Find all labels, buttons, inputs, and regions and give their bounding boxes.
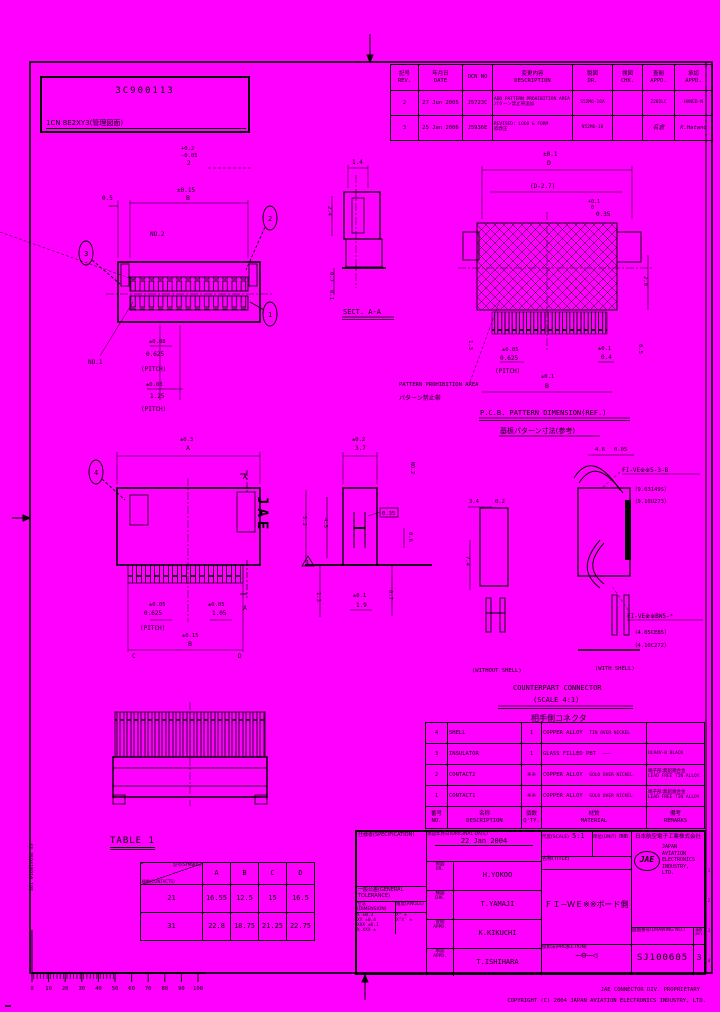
company-box: 日本航空電子工業株式会社 JAE JAPAN AVIATION ELECTRON… bbox=[632, 832, 704, 927]
top-sect-a1: A bbox=[243, 473, 247, 481]
table1-col-d: D bbox=[287, 863, 315, 885]
parts-row-contact2: 2 CONTACT2 ※※ COPPER ALLOY GOLD OVER NIC… bbox=[426, 765, 705, 786]
table1-value: 22.8 bbox=[203, 913, 231, 941]
stamp-note: 1CN 8E2XY3(管理図面) bbox=[46, 118, 246, 129]
cp-dim-46: 4.6 bbox=[595, 447, 605, 453]
part-qty: 1 bbox=[522, 723, 542, 744]
part-material: COPPER ALLOY bbox=[543, 793, 583, 799]
drawing-no-label: 図面番号(DRAWING NO.) bbox=[632, 928, 685, 933]
cp-caption-left: (WITHOUT SHELL) bbox=[472, 668, 522, 674]
part-name: INSULATOR bbox=[448, 744, 522, 765]
pcb-tol-d: ±0.1 bbox=[543, 151, 558, 158]
rev-date: 27 Jun 2005 bbox=[419, 91, 463, 116]
revision-row-3: 3 25 Jan 2006 J5936E REVISED: LOGO & FOR… bbox=[391, 116, 713, 141]
cp-label-bot: FI-VE※※BW5-* bbox=[627, 613, 674, 620]
top-sect-a2: A bbox=[243, 604, 247, 612]
front-dim-0_5: 0.5 bbox=[102, 195, 113, 202]
ruler-tick-20: 20 bbox=[62, 986, 69, 992]
front-pitch1-tol: ±0.08 bbox=[149, 339, 166, 345]
rev-number: 3 bbox=[391, 116, 419, 141]
scale-label: 尺度(SCALE) bbox=[542, 835, 569, 840]
front-balloon-3: 3 bbox=[84, 250, 88, 258]
top-q-tol: ±0.05 bbox=[208, 602, 225, 608]
front-view: 3 2 1 0.5 +0.2 -0.05 2 ±0.15 B NO.2 NO.1… bbox=[0, 146, 277, 413]
table1-value: 12.5 bbox=[231, 885, 259, 913]
footer-proprietary: JAE CONNECTOR DIV. PROPRIETARY bbox=[601, 987, 701, 993]
pcb-title-jp: 基板パターン寸法(参考) bbox=[500, 426, 575, 435]
company-name-jp: 日本航空電子工業株式会社 bbox=[632, 832, 704, 840]
pcb-dim-d: D bbox=[547, 159, 551, 167]
rev-chk-sig bbox=[613, 116, 643, 141]
scale-box: 尺度(SCALE) 5:1 単位(UNIT) mm bbox=[542, 832, 632, 857]
cp-dim-02: 0.2 bbox=[495, 499, 505, 505]
sheet-rev-value: 3 bbox=[694, 945, 704, 973]
rev-dcn: J5936E bbox=[463, 116, 493, 141]
cp-label-top-s2: 〔9.10U273〕 bbox=[632, 498, 670, 505]
company-name-en-3: INDUSTRY, LTD. bbox=[662, 864, 704, 877]
front-label-no2: NO.2 bbox=[150, 231, 165, 238]
title-value-box: ＦＩ−ＷＥ※※ボード側 bbox=[542, 870, 632, 945]
drawing-number: SJ100605 bbox=[632, 945, 694, 973]
rev-desc-jp: パターン禁止帯追加 bbox=[494, 103, 571, 108]
projection-label: 投影法(PROJECTION) bbox=[542, 945, 587, 950]
edge-strip-mark-2: 2 bbox=[708, 898, 711, 903]
scale-value: 5:1 bbox=[572, 832, 585, 840]
top-pitch: 0.625 bbox=[144, 610, 162, 617]
rev-desc-jp: 枠改正 bbox=[494, 128, 571, 133]
approval-stamp: 3C900113 1CN 8E2XY3(管理図面) bbox=[40, 76, 250, 133]
table1-row-21: 21 16.55 12.5 15 16.5 bbox=[141, 885, 315, 913]
table1: 記号(SYMBOL) 極数(CONTACTS) A B C D 21 16.55… bbox=[140, 862, 315, 941]
mid-tol-19: ±0.1 bbox=[353, 593, 366, 599]
rev-dcn: J5723C bbox=[463, 91, 493, 116]
part-finish: ——— bbox=[603, 752, 611, 757]
ruler-tick-100: 100 bbox=[193, 986, 203, 992]
parts-row-insulator: 3 INSULATOR 1 GLASS FILLED PBT ——— UL94V… bbox=[426, 744, 705, 765]
top-pitch-lbl: (PITCH) bbox=[140, 625, 165, 632]
tol-dim-row: X.XXX ± bbox=[357, 928, 396, 933]
cp-label-bot-s2: 〔4.10C272〕 bbox=[632, 642, 670, 649]
pcb-dim-0_5: 0.5 bbox=[637, 344, 643, 354]
part-no: 1 bbox=[426, 786, 448, 807]
cp-caption-right: (WITH SHELL) bbox=[595, 666, 635, 672]
pcb-title-en: P.C.B. PATTERN DIMENSION(REF.) bbox=[480, 409, 606, 417]
counterpart-view: 3.4 0.2 7.4 4.6 0.05 FI-VE※※5-3-B 〔9.031… bbox=[464, 447, 703, 723]
sign-name: T.ISHIHARA bbox=[454, 949, 541, 976]
front-tol-b: ±0.15 bbox=[177, 187, 195, 194]
cp-label-top-s1: 〔9.03149S〕 bbox=[632, 486, 670, 493]
front-dim-b: B bbox=[186, 194, 190, 202]
front-balloon-2: 2 bbox=[268, 215, 272, 223]
top-q: 1.05 bbox=[212, 610, 227, 617]
top-tol-b: ±0.15 bbox=[182, 633, 199, 639]
ruler-tick-30: 30 bbox=[78, 986, 85, 992]
unit-label: 単位(UNIT) bbox=[593, 835, 616, 840]
pcb-tol-04: ±0.1 bbox=[598, 346, 611, 352]
front-pitch2-tol: ±0.08 bbox=[146, 382, 163, 388]
sign-row-appd: 査閲APPD. K.KIKUCHI bbox=[427, 920, 541, 949]
pcb-pad-tol-m: 0 bbox=[591, 205, 594, 211]
top-dim-a: A bbox=[186, 444, 190, 452]
front-tol-minus: -0.05 bbox=[181, 153, 198, 159]
stamp-number: 3C900113 bbox=[42, 86, 248, 96]
pcb-pattern-view: ±0.1 D (D-2.7) +0.1 0 0.35 2.0 1.3 0.5 ±… bbox=[399, 151, 652, 436]
parts-row-shell: 4 SHELL 1 COPPER ALLOY TIN OVER NICKEL bbox=[426, 723, 705, 744]
parts-list: 4 SHELL 1 COPPER ALLOY TIN OVER NICKEL 3… bbox=[425, 722, 705, 829]
sign-row-appl: 承認APPD. T.ISHIHARA bbox=[427, 949, 541, 976]
table1-value: 22.75 bbox=[287, 913, 315, 941]
rev-appl-sig: HANED-N bbox=[675, 91, 713, 116]
front-dim-2: 2 bbox=[187, 160, 191, 167]
front-pitch1: 0.625 bbox=[146, 351, 164, 358]
mid-dim-52: 5.2 bbox=[301, 516, 307, 526]
table1-contacts: 31 bbox=[141, 913, 203, 941]
unit-value: mm bbox=[619, 832, 627, 840]
part-material: COPPER ALLOY bbox=[543, 730, 583, 736]
table1-value: 15 bbox=[259, 885, 287, 913]
jae-logo: JAE bbox=[634, 851, 660, 871]
edge-strip-mark-3: 3 bbox=[708, 928, 711, 933]
center-marks bbox=[5, 34, 373, 1006]
front-pitch2: 1.25 bbox=[150, 393, 165, 400]
rev-label-box: 版数 (REV.) bbox=[694, 927, 704, 945]
pcb-dim-1_3: 1.3 bbox=[467, 340, 473, 350]
table1-value: 18.75 bbox=[231, 913, 259, 941]
ruler-tick-90: 90 bbox=[178, 986, 185, 992]
ruler-tick-50: 50 bbox=[112, 986, 119, 992]
front-tol-plus: +0.2 bbox=[181, 146, 194, 152]
part-no: 4 bbox=[426, 723, 448, 744]
mid-dim-06: 0.6 bbox=[407, 532, 413, 542]
table1-col-c: C bbox=[259, 863, 287, 885]
cp-dim-74: 7.4 bbox=[464, 556, 470, 567]
rev-dr-sig: S52M6-10A bbox=[573, 91, 613, 116]
rev-chk-sig bbox=[613, 91, 643, 116]
table1-title: TABLE 1 bbox=[110, 836, 155, 850]
table1-value: 16.5 bbox=[287, 885, 315, 913]
company-name-en-1: JAPAN AVIATION bbox=[662, 844, 704, 857]
part-finish: GOLD OVER NICKEL bbox=[589, 794, 632, 799]
drawing-no-label-box: 図面番号(DRAWING NO.) bbox=[632, 927, 694, 945]
mid-dim-07: 0.7 bbox=[387, 590, 393, 600]
sect-dim-1_4: 1.4 bbox=[352, 159, 363, 166]
revision-row-2: 2 27 Jun 2005 J5723C ADD PATTERN PROHIBI… bbox=[391, 91, 713, 116]
top-dim-c: C bbox=[132, 653, 136, 660]
cp-dim-34: 3.4 bbox=[469, 499, 480, 505]
part-name: CONTACT1 bbox=[448, 786, 522, 807]
cp-dim-005: 0.05 bbox=[614, 447, 627, 453]
revision-table: 記号REV. 年月日DATE DCN NO 変更内容DESCRIPTION 製図… bbox=[390, 64, 713, 141]
part-finish: TIN OVER NICKEL bbox=[589, 731, 630, 736]
section-aa-label: SECT. A-A bbox=[343, 308, 382, 316]
part-name: SHELL bbox=[448, 723, 522, 744]
pcb-pitch-lbl: (PITCH) bbox=[495, 368, 520, 375]
sect-dim-0_1: 0.1 bbox=[328, 290, 334, 300]
projection-box: 投影法(PROJECTION) —⊖—◁ bbox=[542, 945, 632, 973]
sect-dim-2_4: 2.4 bbox=[326, 206, 332, 217]
rev-appd-sig: 2202LC bbox=[643, 91, 675, 116]
part-material: COPPER ALLOY bbox=[543, 772, 583, 778]
sign-name: H.YOKOO bbox=[454, 862, 541, 890]
part-name: CONTACT2 bbox=[448, 765, 522, 786]
table1-row-31: 31 22.8 18.75 21.25 22.75 bbox=[141, 913, 315, 941]
top-balloon-4: 4 bbox=[94, 469, 98, 477]
pcb-pad-width: 0.35 bbox=[596, 211, 611, 218]
table1-col-b: B bbox=[231, 863, 259, 885]
rev-dr-sig: N52M6-10 bbox=[573, 116, 613, 141]
table1-col-a: A bbox=[203, 863, 231, 885]
jae-logo-vertical: JAE bbox=[254, 496, 270, 533]
bottom-view bbox=[113, 702, 267, 806]
mid-dim-37: 3.7 bbox=[355, 445, 366, 452]
mid-dim-19: 1.9 bbox=[356, 602, 367, 609]
third-angle-projection-icon: —⊖—◁ bbox=[542, 951, 631, 961]
pcb-pad-tol-p: +0.1 bbox=[588, 199, 600, 205]
signature-box: 製図DR. H.YOKOO 検図CHK. T.YAMAJI 査閲APPD. K.… bbox=[427, 862, 542, 973]
sign-row-dr: 製図DR. H.YOKOO bbox=[427, 862, 541, 891]
part-qty: ※※ bbox=[522, 765, 542, 786]
rev-date: 25 Jan 2006 bbox=[419, 116, 463, 141]
section-aa-view: 1.4 2.4 0.7 0.1 SECT. A-A bbox=[326, 159, 394, 320]
part-finish: GOLD OVER NICKEL bbox=[589, 773, 632, 778]
edge-microfilm-code: 43-35941B910-195 bbox=[27, 843, 33, 891]
original-date-value: 22 Jan 2004 bbox=[435, 837, 533, 846]
mid-dim-45: 4.5 bbox=[322, 518, 328, 528]
ruler-tick-80: 80 bbox=[161, 986, 168, 992]
mid-no2: NO.2 bbox=[409, 462, 415, 474]
pcb-note-en: PATTERN PROHIBITION AREA bbox=[399, 382, 479, 388]
part-remark: UL94V-0 BLACK bbox=[648, 752, 703, 757]
top-view: 4 JAE ±0.3 A A A ±0.05 0.625 (PITCH) ±0.… bbox=[89, 437, 270, 660]
pcb-note-jp: パターン禁止帯 bbox=[399, 394, 441, 402]
pcb-dim-b: B bbox=[545, 382, 549, 390]
pcb-dim-04: 0.4 bbox=[601, 354, 612, 361]
rev-appl-sig: K.Hatano bbox=[675, 116, 713, 141]
tolerance-title: 一般公差(GENERAL TOLERANCE) bbox=[357, 887, 426, 902]
mid-section-view: ±0.2 3.7 NO.2 0.35 5.2 4.5 0.6 1 1.3 ±0.… bbox=[301, 437, 432, 617]
table1-value: 16.55 bbox=[203, 885, 231, 913]
front-pitch1-lbl: (PITCH) bbox=[141, 366, 166, 373]
pcb-dim-2_0: 2.0 bbox=[642, 276, 648, 286]
cp-label-top: FI-VE※※5-3-B bbox=[622, 467, 669, 474]
table1-value: 21.25 bbox=[259, 913, 287, 941]
mid-dim-035: 0.35 bbox=[382, 511, 395, 517]
mid-dim-13: 1.3 bbox=[315, 592, 321, 602]
sign-name: K.KIKUCHI bbox=[454, 920, 541, 948]
tol-ang-row: X°X′ ± bbox=[396, 918, 412, 923]
tolerance-col-ang: 角度(ANGLE) bbox=[396, 902, 426, 912]
sect-dim-0_7: 0.7 bbox=[328, 272, 334, 282]
title-label: 名称(TITLE) bbox=[542, 857, 632, 870]
dcn-col-header: DCN NO bbox=[464, 74, 491, 80]
cp-title-en: COUNTERPART CONNECTOR bbox=[513, 684, 602, 692]
ruler-tick-0: 0 bbox=[30, 986, 33, 992]
ruler-tick-10: 10 bbox=[45, 986, 52, 992]
title-block: 仕様書(SPECIFICATION) 一般公差(GENERAL TOLERANC… bbox=[355, 830, 706, 975]
tolerance-col-dim: 寸法(DIMENSION) bbox=[357, 902, 396, 912]
front-pitch2-lbl: (PITCH) bbox=[141, 406, 166, 413]
mid-delta-1: 1 bbox=[306, 560, 309, 566]
table1-contacts: 21 bbox=[141, 885, 203, 913]
top-dim-b: B bbox=[188, 640, 192, 648]
part-title: ＦＩ−ＷＥ※※ボード側 bbox=[542, 900, 631, 909]
drawing-sheet: { "page": {"bg": "#FF00FF", "ink": "#000… bbox=[0, 0, 720, 1012]
tolerance-box: 一般公差(GENERAL TOLERANCE) 寸法(DIMENSION) 角度… bbox=[357, 887, 427, 973]
pcb-tol-b: ±0.1 bbox=[541, 374, 554, 380]
ruler-tick-40: 40 bbox=[95, 986, 102, 992]
edge-strip-mark-1: 1 bbox=[708, 868, 711, 873]
cp-scale: (SCALE 4:1) bbox=[533, 696, 579, 704]
rev-appd-sig: 名倉 bbox=[643, 116, 675, 141]
ruler-tick-70: 70 bbox=[145, 986, 152, 992]
top-dim-d: D bbox=[238, 653, 242, 660]
top-tol-a: ±0.3 bbox=[180, 437, 193, 443]
front-balloon-1: 1 bbox=[268, 311, 272, 319]
pcb-pitch-tol: ±0.05 bbox=[502, 347, 519, 353]
footer-copyright: COPYRIGHT (C) 2004 JAPAN AVIATION ELECTR… bbox=[507, 998, 706, 1004]
part-material: GLASS FILLED PBT bbox=[543, 751, 596, 757]
part-qty: 1 bbox=[522, 744, 542, 765]
ruler-tick-60: 60 bbox=[128, 986, 135, 992]
original-date-box: 承認年月日(ORIGINAL DATE) 22 Jan 2004 bbox=[427, 832, 542, 862]
sign-row-chk: 検図CHK. T.YAMAJI bbox=[427, 891, 541, 920]
part-no: 2 bbox=[426, 765, 448, 786]
pcb-dim-dm27: (D-2.7) bbox=[530, 183, 555, 190]
parts-row-contact1: 1 CONTACT1 ※※ COPPER ALLOY GOLD OVER NIC… bbox=[426, 786, 705, 807]
table1-corner: 記号(SYMBOL) 極数(CONTACTS) bbox=[141, 863, 203, 885]
mid-tol-37: ±0.2 bbox=[352, 437, 365, 443]
part-no: 3 bbox=[426, 744, 448, 765]
front-label-no1: NO.1 bbox=[88, 359, 103, 366]
sign-name: T.YAMAJI bbox=[454, 891, 541, 919]
cp-label-bot-s1: 〔4.05CEB5〕 bbox=[632, 629, 670, 636]
part-qty: ※※ bbox=[522, 786, 542, 807]
pcb-pitch: 0.625 bbox=[500, 355, 518, 362]
spec-box: 仕様書(SPECIFICATION) bbox=[357, 832, 427, 887]
top-pitch-tol: ±0.05 bbox=[149, 602, 166, 608]
rev-number: 2 bbox=[391, 91, 419, 116]
edge-strip-mark-4: 4 bbox=[708, 958, 711, 963]
